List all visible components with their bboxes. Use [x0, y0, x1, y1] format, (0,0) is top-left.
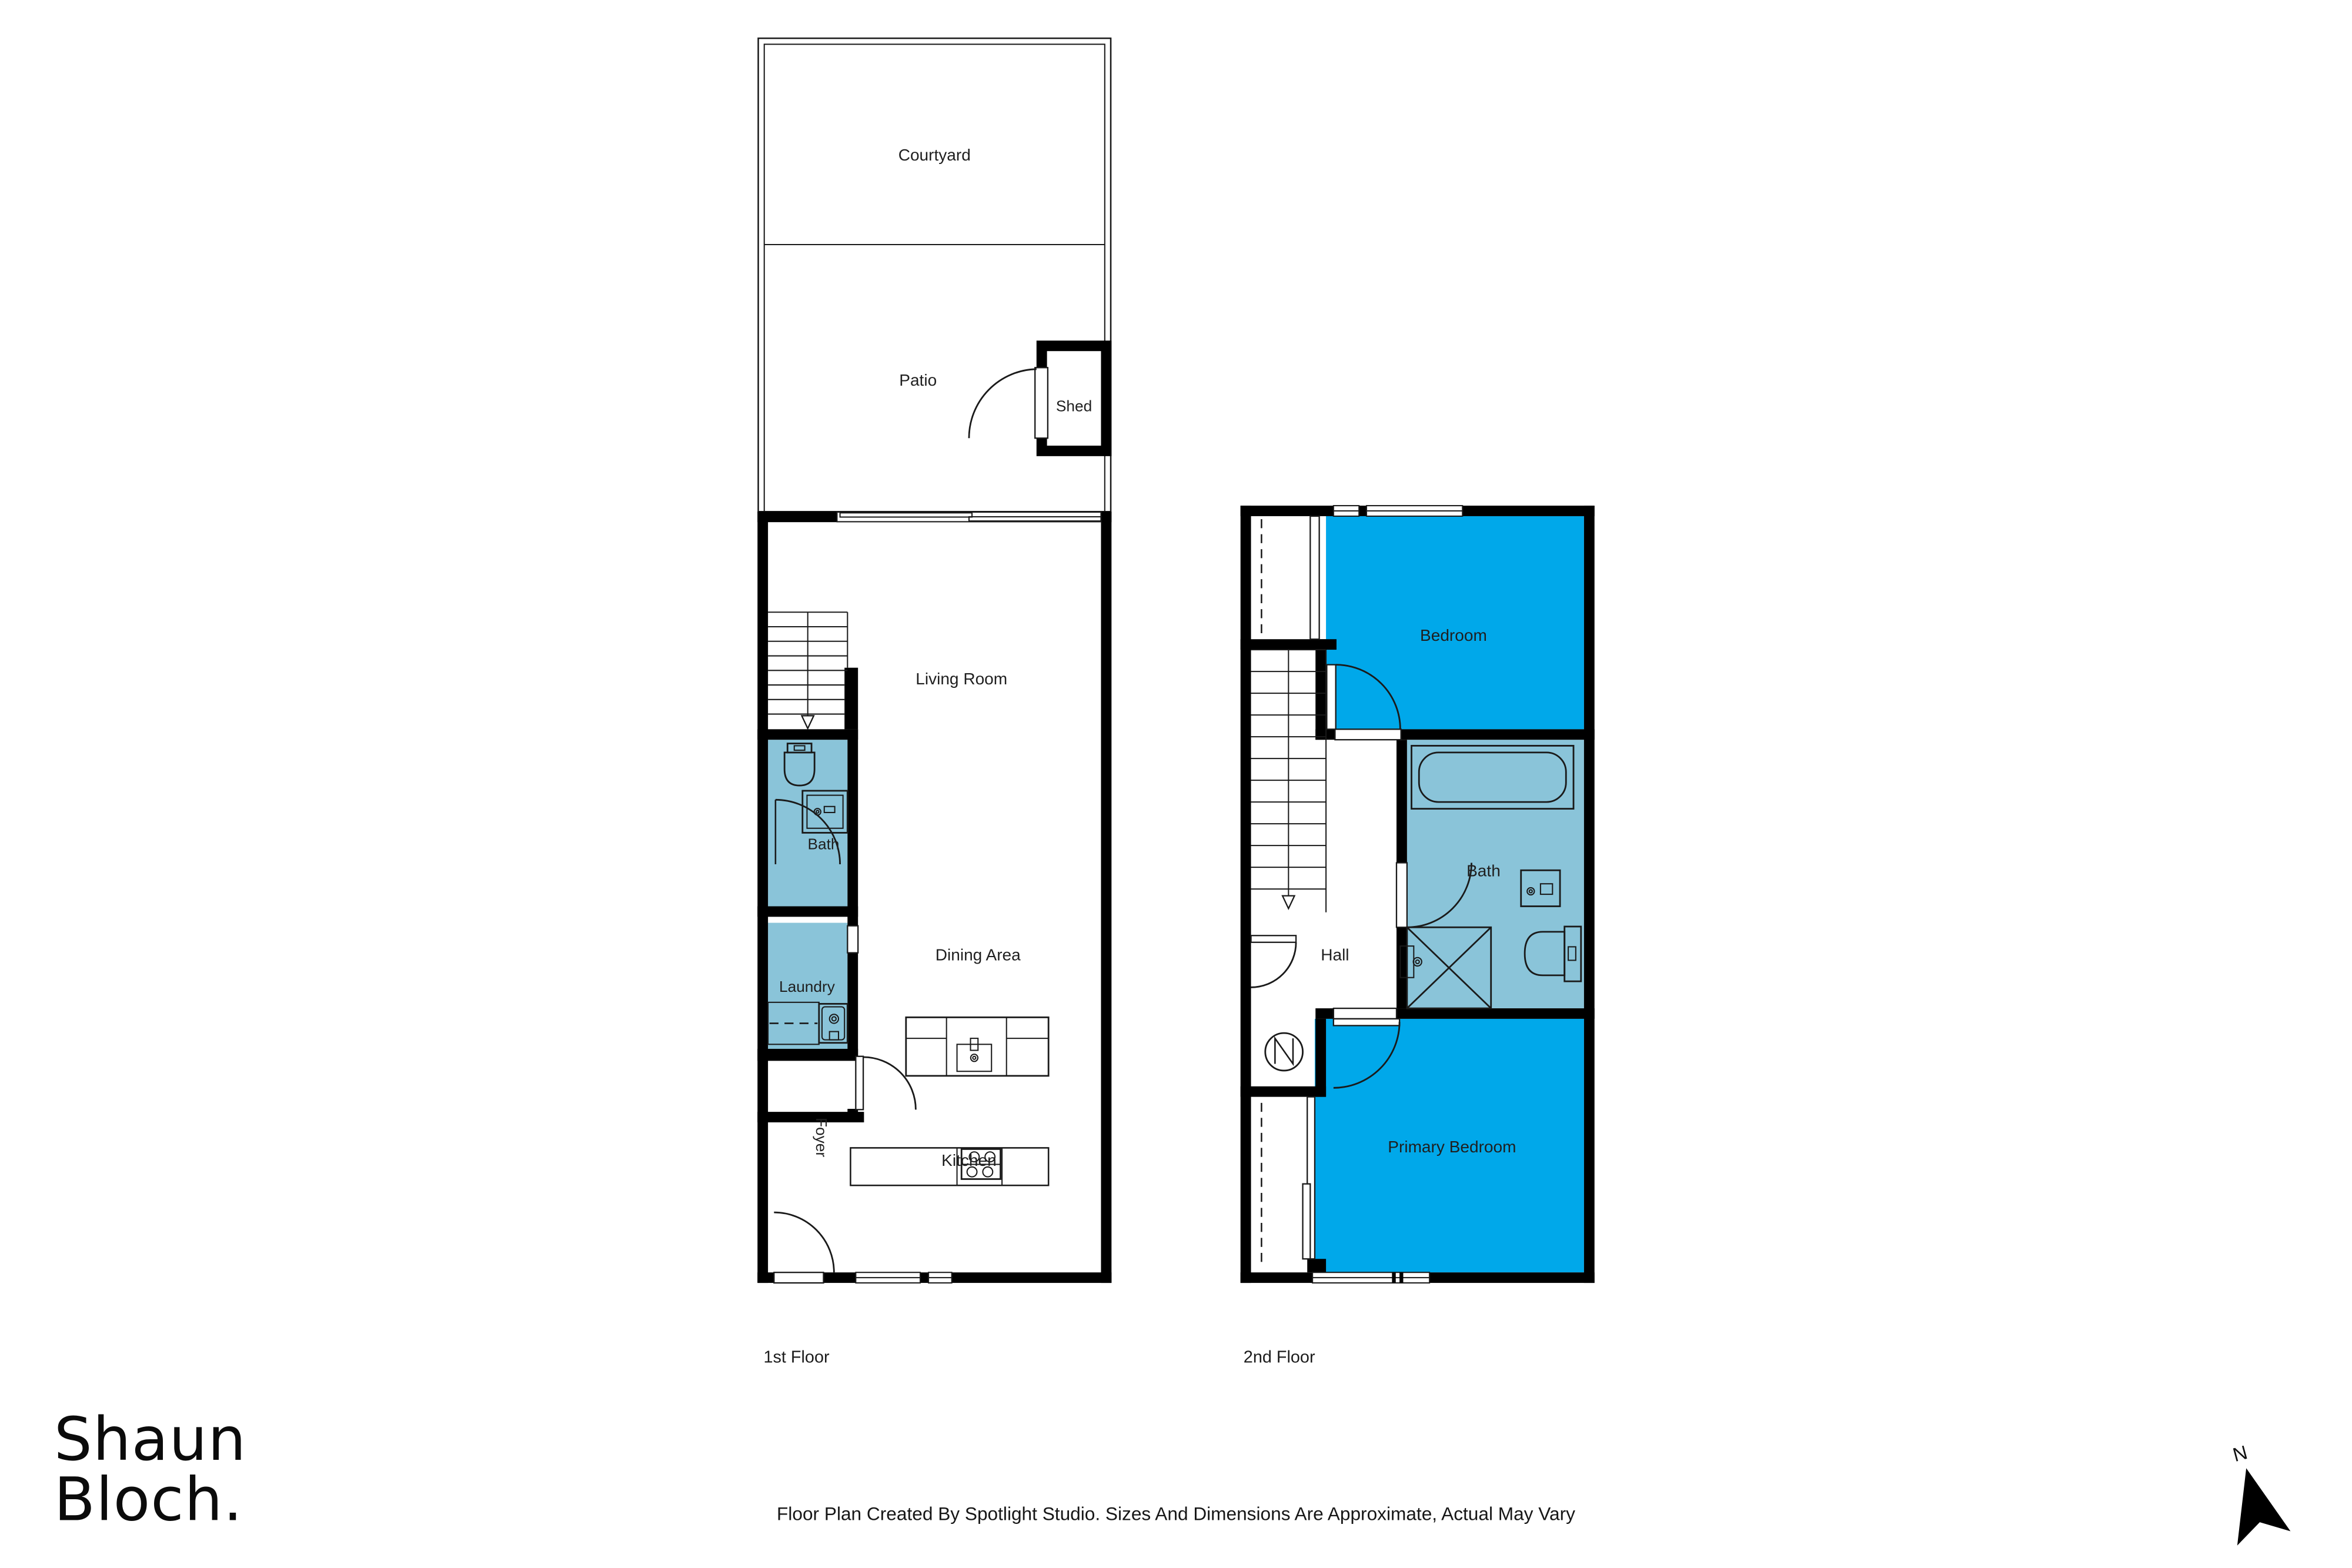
north-label: N — [2230, 1442, 2250, 1466]
living-room-slider-window — [837, 512, 1101, 521]
label-kitchen: Kitchen — [941, 1151, 997, 1169]
stairs-down-arrow — [802, 716, 814, 728]
north-arrow-icon: N — [2230, 1442, 2290, 1546]
hall-door — [1251, 935, 1297, 987]
primary-door-leaf — [1334, 1019, 1399, 1025]
bath1-floor — [768, 740, 847, 906]
label-courtyard: Courtyard — [898, 146, 971, 164]
first-floor-plan: Courtyard Patio Shed Living Room Bath La… — [757, 38, 1111, 1366]
laundry-wall-opening — [847, 926, 858, 953]
label-living-room: Living Room — [916, 670, 1007, 688]
bedroom-door-leaf — [1327, 665, 1335, 730]
label-foyer: Foyer — [813, 1118, 830, 1157]
label-dining-area: Dining Area — [936, 945, 1021, 964]
bedroom-windows — [1334, 506, 1462, 516]
second-floor-plan: Bedroom Hall Bath Primary Bedroom 2nd Fl… — [1241, 506, 1595, 1366]
label-laundry: Laundry — [779, 978, 836, 995]
dining-door-leaf — [856, 1057, 863, 1110]
label-hall: Hall — [1321, 945, 1349, 964]
stairs-down-arrow-2 — [1282, 896, 1294, 909]
stairs-second-floor — [1251, 650, 1327, 912]
logo-line2: Bloch. — [54, 1465, 243, 1534]
disclaimer-text: Floor Plan Created By Spotlight Studio. … — [777, 1503, 1575, 1524]
shed-door-arc — [969, 369, 1037, 438]
stairs-first-floor — [768, 612, 847, 728]
water-heater-icon — [1265, 1033, 1303, 1071]
label-shed: Shed — [1056, 397, 1092, 414]
hall-door-arc — [1251, 942, 1297, 988]
label-bath2: Bath — [1466, 861, 1501, 880]
label-bedroom: Bedroom — [1420, 626, 1487, 644]
closet-front — [1310, 516, 1319, 639]
dining-door-arc — [863, 1057, 916, 1109]
closet-slider-leaf — [1303, 1184, 1311, 1259]
island-sink-icon — [957, 1038, 992, 1071]
hall-door-leaf — [1251, 935, 1297, 942]
closet-top-left — [1261, 516, 1319, 639]
bath2-door-opening — [1396, 862, 1407, 927]
foyer-door-arc — [774, 1212, 834, 1272]
closet-bottom-left — [1261, 1097, 1315, 1268]
label-primary-bedroom: Primary Bedroom — [1388, 1138, 1516, 1156]
caption-first-floor: 1st Floor — [763, 1348, 830, 1366]
label-bath1: Bath — [807, 835, 839, 853]
branding-logo: Shaun Bloch. — [54, 1405, 247, 1534]
label-patio: Patio — [899, 371, 937, 389]
front-door-opening — [774, 1272, 823, 1283]
bedroom-floor — [1326, 516, 1584, 729]
primary-bedroom-window — [1312, 1272, 1429, 1283]
floor-plan-canvas: Courtyard Patio Shed Living Room Bath La… — [0, 0, 2352, 1568]
kitchen-island — [906, 1017, 1048, 1076]
caption-second-floor: 2nd Floor — [1244, 1348, 1315, 1366]
